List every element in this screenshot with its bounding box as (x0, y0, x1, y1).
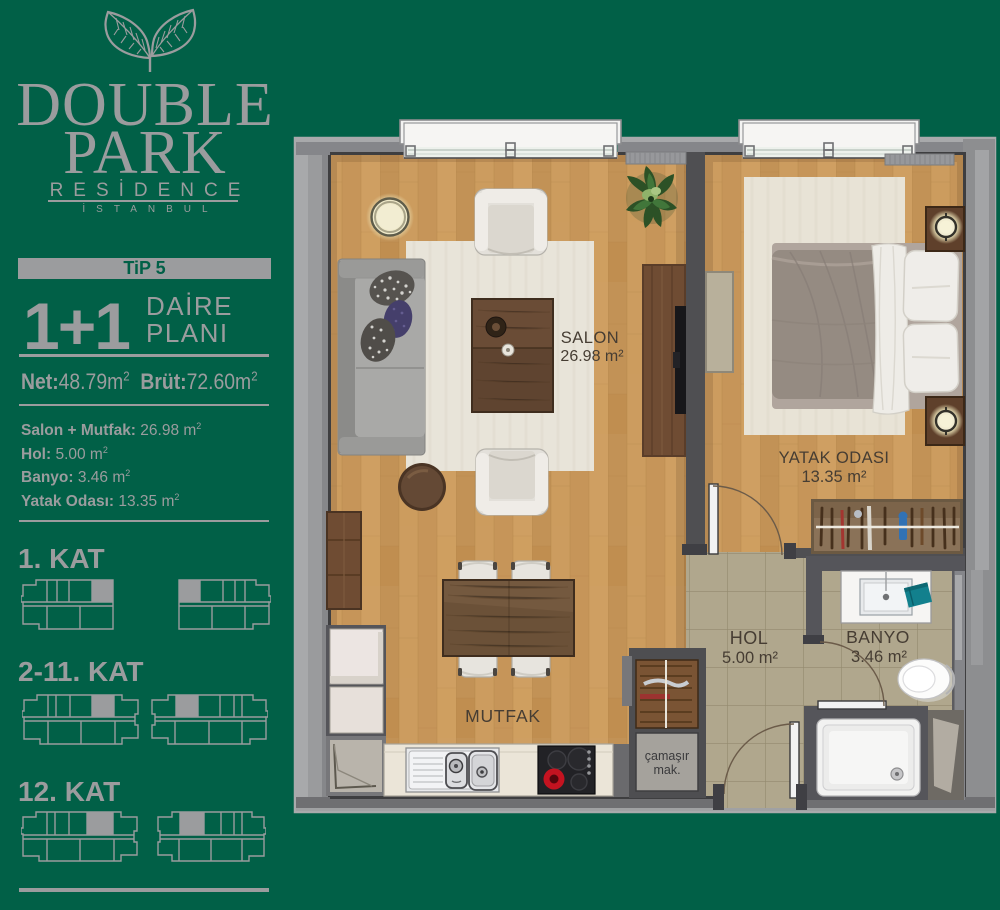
svg-text:BANYO: BANYO (846, 627, 910, 647)
svg-text:mak.: mak. (653, 763, 680, 777)
svg-text:13.35 m²: 13.35 m² (801, 468, 867, 486)
svg-text:3.46 m²: 3.46 m² (851, 648, 907, 666)
svg-text:HOL: HOL (730, 628, 769, 648)
svg-text:MUTFAK: MUTFAK (465, 706, 541, 726)
svg-text:çamaşır: çamaşır (645, 749, 689, 763)
svg-text:26.98 m²: 26.98 m² (560, 348, 624, 365)
svg-text:YATAK ODASI: YATAK ODASI (779, 449, 890, 467)
svg-text:5.00 m²: 5.00 m² (722, 649, 778, 667)
svg-text:SALON: SALON (561, 329, 619, 347)
